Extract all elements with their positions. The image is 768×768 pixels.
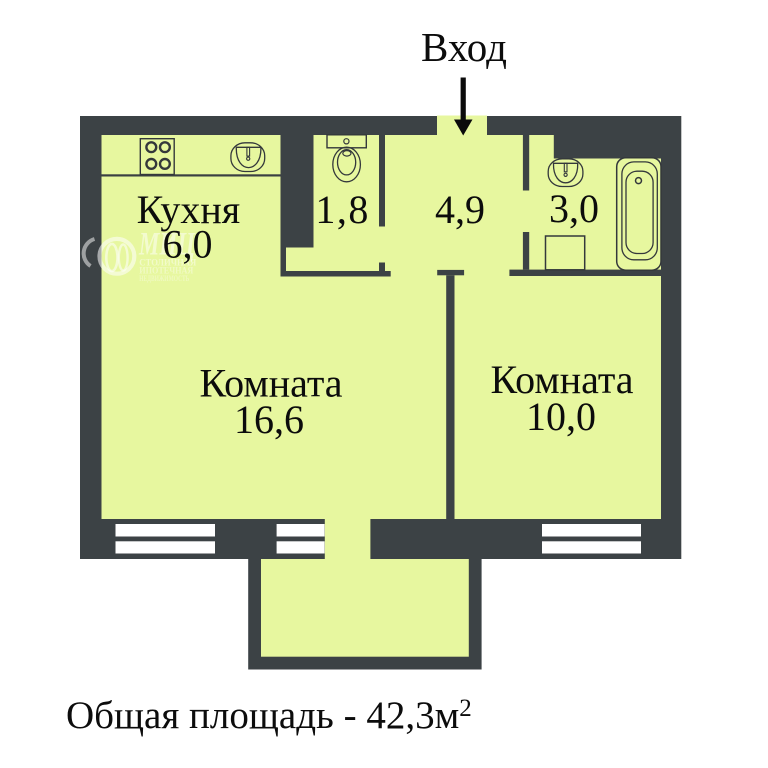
svg-text:3,0: 3,0: [549, 186, 599, 231]
svg-text:Общая площадь - 42,3м2: Общая площадь - 42,3м2: [66, 694, 472, 737]
svg-text:НЕДВИЖИМОСТЬ: НЕДВИЖИМОСТЬ: [139, 274, 189, 283]
svg-text:Вход: Вход: [421, 24, 507, 70]
svg-text:1,8: 1,8: [315, 187, 370, 232]
svg-text:10,0: 10,0: [526, 394, 596, 439]
svg-text:6,0: 6,0: [163, 222, 213, 267]
svg-text:16,6: 16,6: [234, 397, 304, 442]
svg-text:4,9: 4,9: [435, 187, 485, 232]
